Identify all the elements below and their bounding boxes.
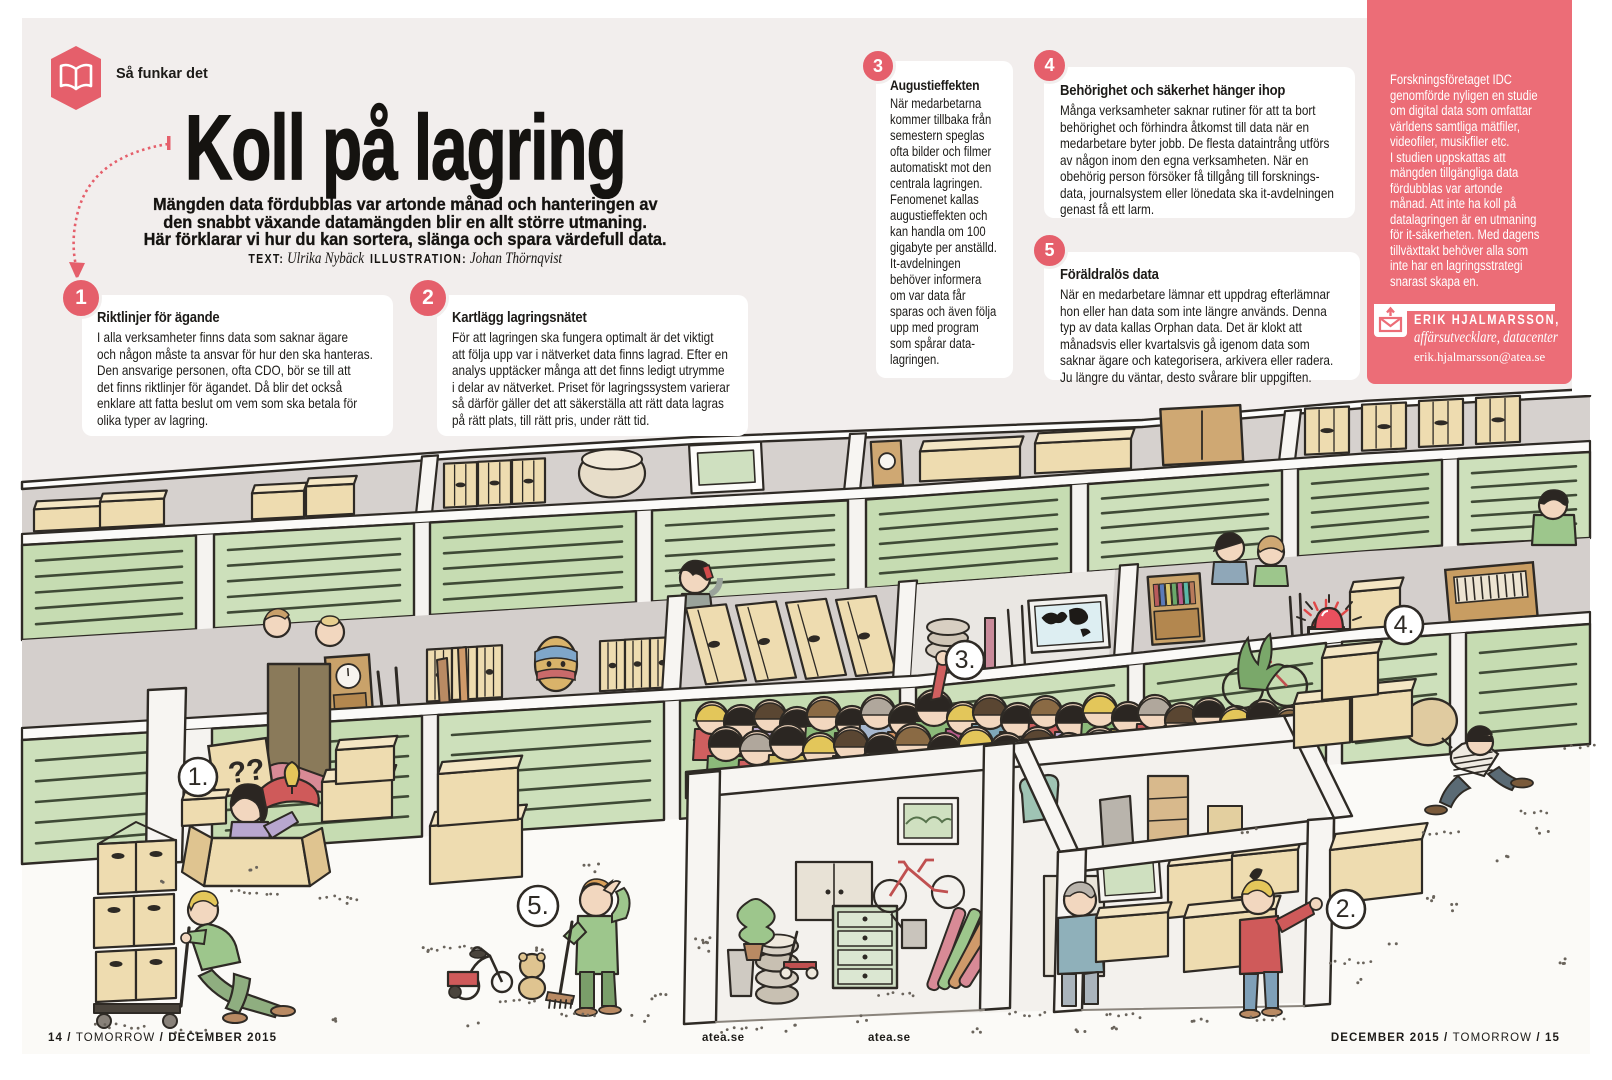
svg-text:3.: 3. <box>955 646 976 674</box>
svg-text:5.: 5. <box>527 890 549 920</box>
svg-text:2.: 2. <box>1336 895 1357 923</box>
svg-text:1.: 1. <box>188 763 209 791</box>
svg-text:4.: 4. <box>1394 611 1415 639</box>
